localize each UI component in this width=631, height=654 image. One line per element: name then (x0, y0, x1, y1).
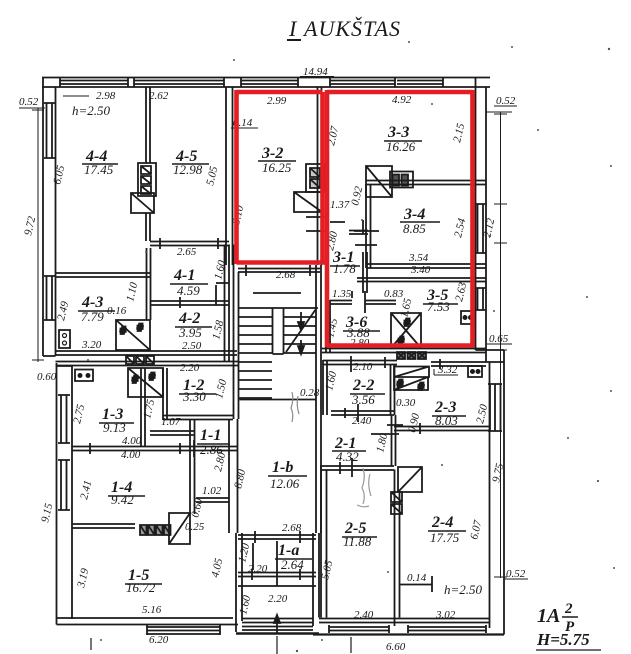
svg-text:#: # (418, 381, 424, 393)
svg-text:3.19: 3.19 (75, 567, 91, 590)
svg-text:0.52: 0.52 (19, 96, 39, 108)
svg-text:2: 2 (564, 601, 573, 617)
svg-text:1.37: 1.37 (330, 199, 350, 211)
svg-text:2.20: 2.20 (268, 593, 288, 605)
svg-text:1.02: 1.02 (202, 485, 222, 497)
svg-text:9.72: 9.72 (22, 215, 38, 237)
svg-text:7.79: 7.79 (81, 309, 104, 324)
svg-text:0.92: 0.92 (349, 185, 365, 207)
svg-text:4.00: 4.00 (121, 449, 141, 461)
svg-text:0.14: 0.14 (407, 572, 427, 584)
svg-text:4.92: 4.92 (392, 94, 412, 106)
svg-text:2.10: 2.10 (353, 361, 373, 373)
svg-text:I: I (288, 16, 298, 41)
svg-text:2.68: 2.68 (276, 269, 296, 281)
svg-text:17.45: 17.45 (84, 162, 114, 177)
svg-text:9.42: 9.42 (111, 492, 134, 507)
svg-text:1.50: 1.50 (213, 378, 229, 400)
svg-text:1.78: 1.78 (333, 261, 356, 276)
svg-text:2.40: 2.40 (352, 415, 372, 427)
svg-text:2.98: 2.98 (96, 90, 116, 102)
svg-text:0.28: 0.28 (300, 387, 320, 399)
svg-text:1.80: 1.80 (374, 432, 390, 454)
svg-text:3.40: 3.40 (410, 264, 431, 276)
svg-text:3.30: 3.30 (182, 389, 206, 404)
svg-text:8.80: 8.80 (232, 468, 248, 490)
svg-text:2.68: 2.68 (282, 522, 302, 534)
svg-text:1.60: 1.60 (212, 259, 228, 281)
svg-text:12.98: 12.98 (173, 162, 203, 177)
svg-text:2.41: 2.41 (78, 479, 94, 500)
svg-text:8.85: 8.85 (403, 221, 426, 236)
svg-text:0.30: 0.30 (396, 397, 416, 409)
svg-text:9.13: 9.13 (103, 420, 126, 435)
svg-text:2.62: 2.62 (149, 90, 169, 102)
svg-text:3.95: 3.95 (178, 325, 202, 340)
svg-text:5.16: 5.16 (142, 604, 162, 616)
svg-text:16.25: 16.25 (262, 160, 292, 175)
svg-text:1.07: 1.07 (161, 416, 181, 428)
svg-text:3.20: 3.20 (81, 339, 102, 351)
svg-text:2.75: 2.75 (71, 403, 87, 425)
svg-text:#: # (137, 322, 143, 334)
svg-text:1.75: 1.75 (141, 398, 157, 420)
svg-text:6.20: 6.20 (149, 634, 169, 646)
svg-text:7.53: 7.53 (427, 299, 450, 314)
svg-text:0.60: 0.60 (37, 371, 57, 383)
svg-text:2.63: 2.63 (453, 281, 469, 303)
svg-text:2.54: 2.54 (452, 217, 468, 239)
svg-text:8.03: 8.03 (435, 413, 458, 428)
svg-text:6.07: 6.07 (468, 519, 484, 541)
svg-text:#: # (149, 371, 155, 383)
svg-text:0.65: 0.65 (489, 333, 509, 345)
svg-text:11.88: 11.88 (343, 534, 372, 549)
svg-text:6.60: 6.60 (386, 641, 406, 653)
svg-text:1.10: 1.10 (124, 281, 140, 303)
svg-text:#: # (132, 374, 138, 386)
svg-text:3.56: 3.56 (351, 392, 375, 407)
svg-text:2.40: 2.40 (354, 609, 374, 621)
svg-text:16.72: 16.72 (126, 580, 156, 595)
svg-text:2.64: 2.64 (281, 557, 304, 572)
svg-text:2.65: 2.65 (177, 246, 197, 258)
svg-text:4-1: 4-1 (173, 267, 195, 284)
svg-text:0.16: 0.16 (107, 305, 127, 317)
svg-text:0.52: 0.52 (496, 95, 516, 107)
svg-text:1-b: 1-b (272, 459, 293, 476)
svg-text:2-4: 2-4 (431, 514, 453, 531)
svg-text:9.15: 9.15 (39, 502, 55, 524)
svg-text:1A: 1A (537, 605, 560, 627)
svg-text:4.32: 4.32 (336, 449, 359, 464)
svg-text:0.60: 0.60 (189, 497, 205, 519)
svg-text:4.59: 4.59 (177, 283, 200, 298)
svg-text:2.49: 2.49 (55, 300, 71, 322)
svg-text:2.50: 2.50 (474, 403, 490, 425)
svg-text:H=5.75: H=5.75 (536, 630, 590, 649)
svg-text:h=2.50: h=2.50 (72, 103, 111, 118)
svg-text:h=2.50: h=2.50 (444, 582, 483, 597)
svg-text:1.20: 1.20 (236, 542, 252, 564)
svg-text:1.60: 1.60 (323, 370, 339, 392)
svg-text:1.60: 1.60 (237, 594, 253, 616)
svg-text:2.20: 2.20 (180, 362, 200, 374)
svg-text:17.75: 17.75 (430, 530, 460, 545)
svg-text:4.05: 4.05 (209, 557, 225, 579)
svg-text:5.05: 5.05 (204, 165, 220, 187)
svg-text:2.99: 2.99 (267, 95, 287, 107)
svg-text:3.02: 3.02 (435, 609, 456, 621)
svg-text:3.32: 3.32 (437, 364, 458, 376)
svg-text:0.52: 0.52 (506, 568, 526, 580)
svg-text:12.06: 12.06 (270, 476, 300, 491)
svg-text:AUKŠTAS: AUKŠTAS (302, 16, 401, 41)
svg-text:1.65: 1.65 (398, 297, 414, 319)
svg-text:#: # (120, 325, 126, 337)
svg-text:1.35: 1.35 (332, 288, 352, 300)
svg-text:4.00: 4.00 (122, 435, 142, 447)
svg-text:3.54: 3.54 (408, 252, 429, 264)
svg-text:6.05: 6.05 (51, 164, 67, 186)
svg-text:0.83: 0.83 (384, 288, 404, 300)
svg-text:16.26: 16.26 (386, 139, 416, 154)
svg-text:2.20: 2.20 (248, 563, 268, 575)
svg-text:2.50: 2.50 (182, 340, 202, 352)
svg-text:2.15: 2.15 (451, 122, 467, 144)
svg-text:#: # (397, 378, 403, 390)
svg-text:0.25: 0.25 (185, 521, 205, 533)
